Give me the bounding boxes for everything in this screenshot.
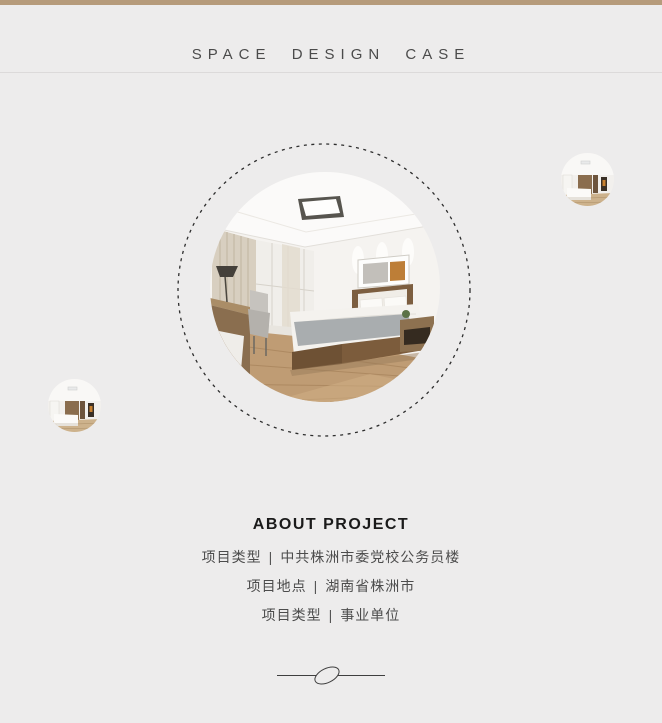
- top-accent-bar: [0, 0, 662, 5]
- about-project-title: ABOUT PROJECT: [0, 516, 662, 534]
- project-info-label: 项目地点: [247, 578, 307, 594]
- project-info-value: 中共株洲市委党校公务员楼: [280, 549, 460, 565]
- header-divider-line: [0, 72, 662, 73]
- project-info-separator: |: [329, 607, 334, 623]
- project-info-label: 项目类型: [262, 607, 322, 623]
- project-info-value: 事业单位: [340, 607, 400, 623]
- footer-divider: [271, 663, 391, 689]
- project-info-separator: |: [269, 549, 274, 565]
- thumbnail-photo-left: [48, 379, 101, 432]
- main-photo-bedroom: [210, 172, 440, 402]
- ellipse-ornament: [312, 664, 342, 688]
- project-info-value: 湖南省株洲市: [325, 578, 415, 594]
- thumbnail-photo-top-right: [561, 153, 614, 206]
- space-design-case-page: SPACE DESIGN CASE: [0, 0, 662, 723]
- project-info-separator: |: [314, 578, 319, 594]
- project-info-list: 项目类型|中共株洲市委党校公务员楼 项目地点|湖南省株洲市 项目类型|事业单位: [0, 543, 662, 630]
- project-info-label: 项目类型: [202, 549, 262, 565]
- project-info-row-location: 项目地点|湖南省株洲市: [0, 572, 662, 601]
- project-info-row-type-2: 项目类型|事业单位: [0, 601, 662, 630]
- project-info-row-type-1: 项目类型|中共株洲市委党校公务员楼: [0, 543, 662, 572]
- page-title: SPACE DESIGN CASE: [0, 46, 662, 63]
